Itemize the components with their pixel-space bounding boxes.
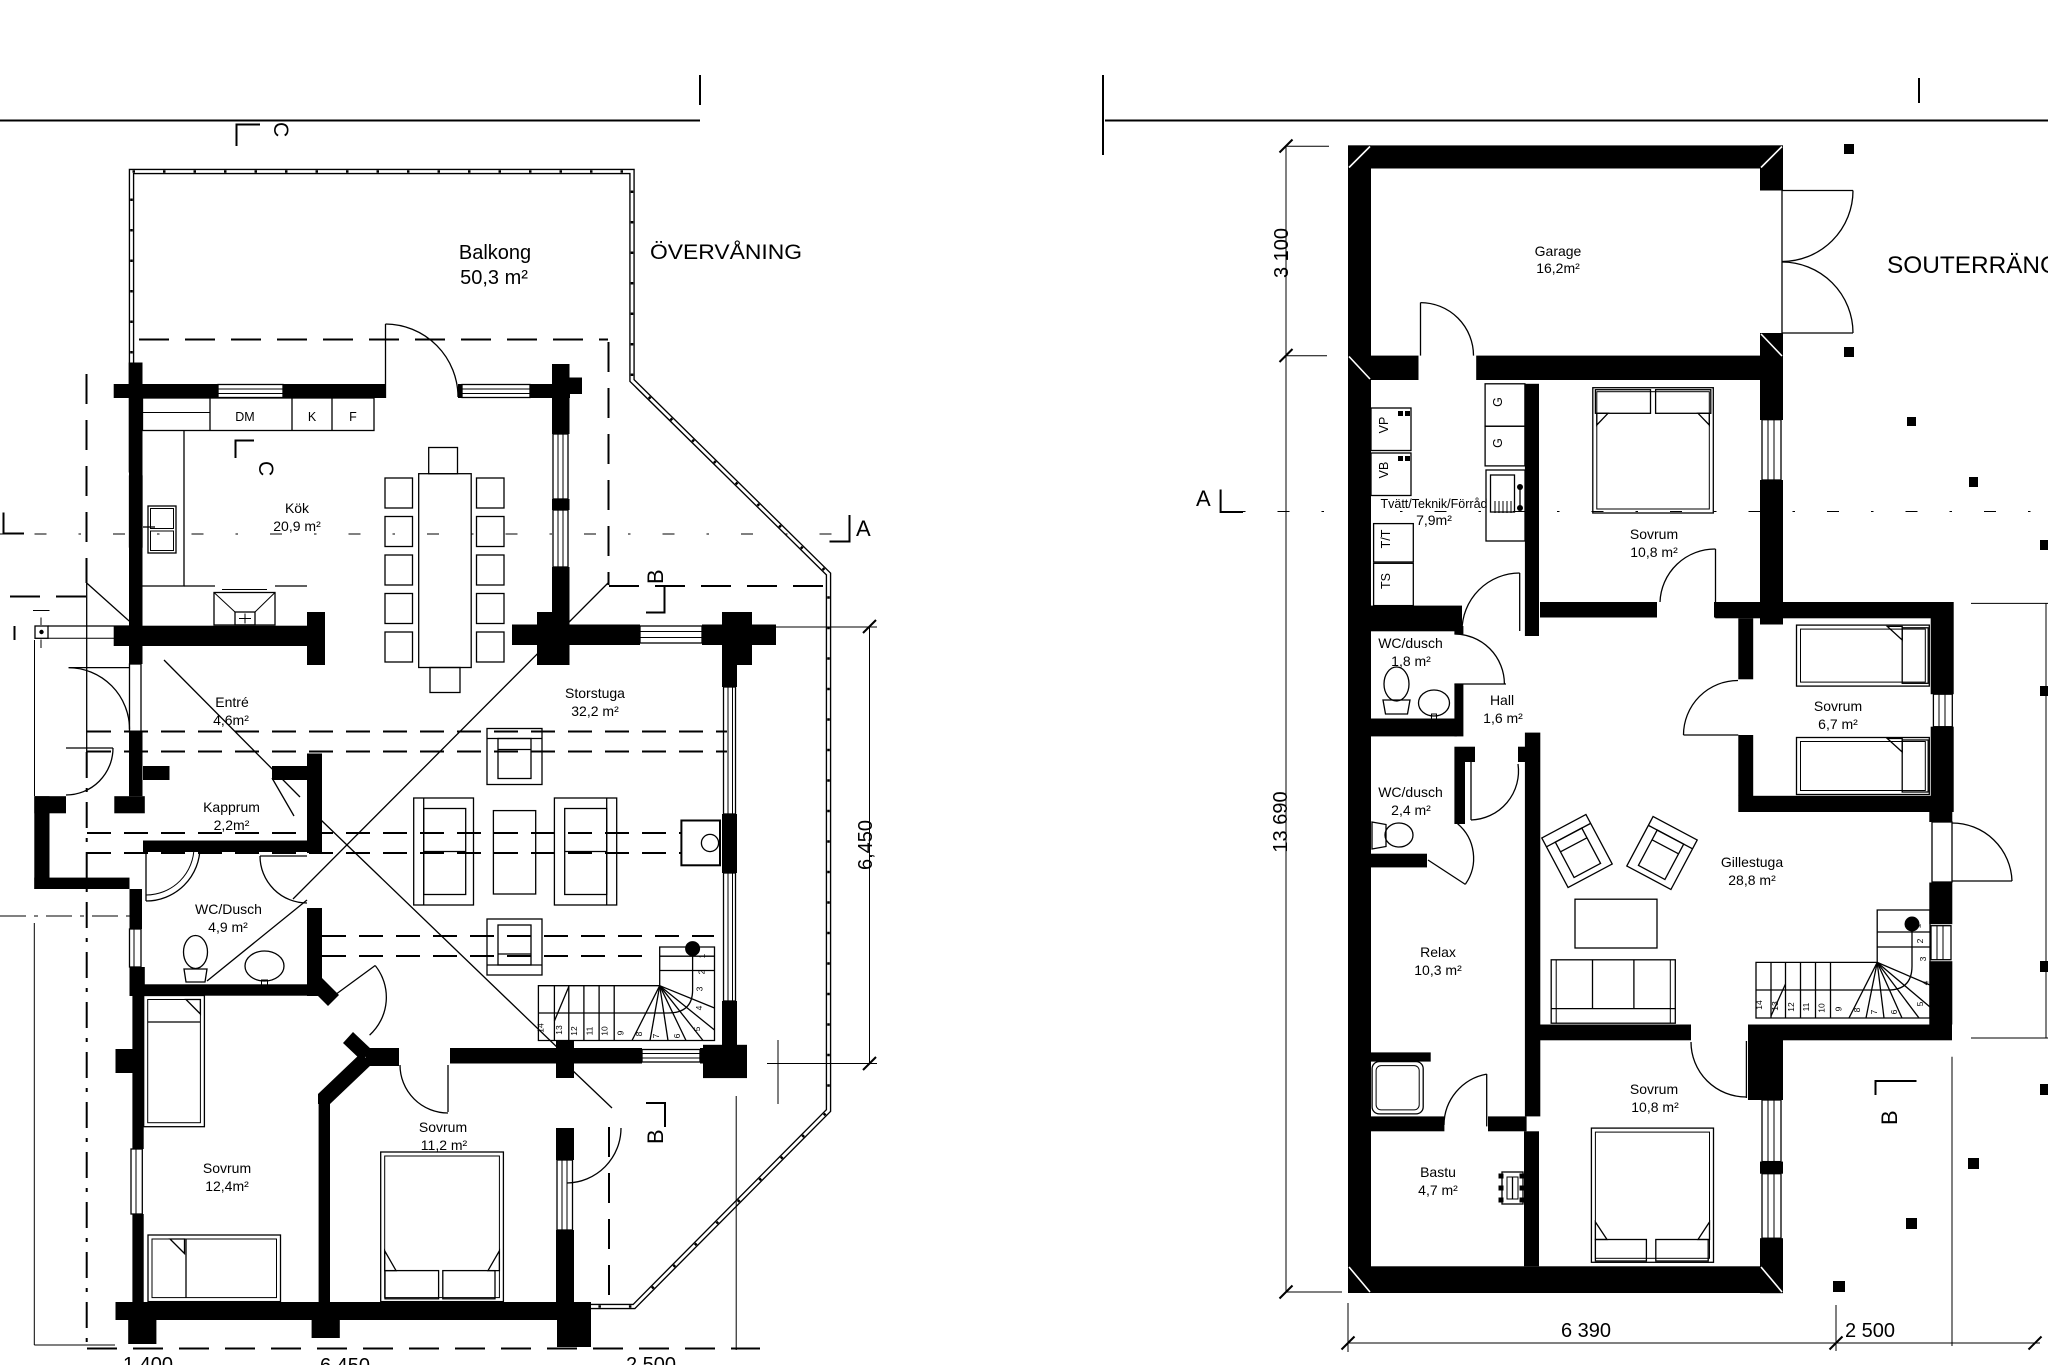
svg-text:11: 11 (584, 1026, 594, 1035)
svg-text:WC/dusch: WC/dusch (1378, 635, 1443, 651)
svg-text:8: 8 (634, 1031, 644, 1036)
svg-text:11: 11 (1801, 1002, 1811, 1011)
svg-text:10: 10 (1816, 1003, 1826, 1013)
svg-text:7: 7 (1869, 1009, 1879, 1014)
svg-text:Gillestuga: Gillestuga (1721, 854, 1783, 870)
svg-text:G: G (1491, 438, 1505, 448)
svg-text:Sovrum: Sovrum (419, 1119, 467, 1135)
svg-text:B: B (643, 569, 668, 584)
svg-text:5: 5 (1915, 1001, 1925, 1006)
svg-text:6 450: 6 450 (320, 1355, 370, 1365)
svg-text:6: 6 (1889, 1009, 1899, 1014)
svg-text:B: B (643, 1129, 668, 1144)
svg-text:Storstuga: Storstuga (565, 685, 625, 701)
svg-text:VP: VP (1377, 417, 1391, 434)
svg-text:9: 9 (1833, 1006, 1843, 1011)
svg-text:A: A (856, 516, 871, 541)
svg-text:WC/dusch: WC/dusch (1378, 784, 1443, 800)
svg-text:7,9m²: 7,9m² (1416, 512, 1452, 528)
svg-text:13 690: 13 690 (1270, 791, 1292, 852)
svg-text:2,4 m²: 2,4 m² (1391, 802, 1431, 818)
svg-text:2: 2 (696, 969, 706, 974)
svg-text:Bastu: Bastu (1420, 1164, 1456, 1180)
svg-text:Hall: Hall (1490, 692, 1514, 708)
svg-text:10,8 m²: 10,8 m² (1631, 1099, 1679, 1115)
svg-text:Garage: Garage (1535, 243, 1582, 259)
svg-text:Tvätt/Teknik/Förråd: Tvätt/Teknik/Förråd (1381, 497, 1488, 511)
svg-text:DM: DM (235, 410, 254, 424)
svg-text:Kök: Kök (285, 500, 310, 516)
svg-text:Balkong: Balkong (459, 242, 531, 264)
svg-text:28,8 m²: 28,8 m² (1728, 872, 1776, 888)
svg-text:4,7 m²: 4,7 m² (1418, 1182, 1458, 1198)
svg-text:10,3 m²: 10,3 m² (1414, 962, 1462, 978)
svg-text:9: 9 (616, 1030, 626, 1035)
svg-text:16,2m²: 16,2m² (1536, 260, 1580, 276)
svg-text:12: 12 (1786, 1002, 1796, 1012)
svg-text:2,2m²: 2,2m² (214, 817, 250, 833)
svg-text:VB: VB (1377, 462, 1391, 479)
svg-text:4: 4 (694, 1005, 704, 1010)
svg-text:32,2 m²: 32,2 m² (571, 703, 619, 719)
svg-text:8: 8 (1852, 1007, 1862, 1012)
svg-text:T/T: T/T (1379, 529, 1393, 548)
svg-text:Entré: Entré (215, 694, 249, 710)
svg-text:C: C (254, 461, 277, 476)
svg-text:3: 3 (695, 986, 705, 991)
svg-text:TS: TS (1379, 573, 1393, 589)
svg-text:20,9 m²: 20,9 m² (273, 518, 321, 534)
svg-text:WC/Dusch: WC/Dusch (195, 901, 262, 917)
svg-text:Sovrum: Sovrum (1630, 1081, 1678, 1097)
svg-text:Relax: Relax (1420, 944, 1456, 960)
svg-text:4,9 m²: 4,9 m² (208, 919, 248, 935)
svg-text:B: B (1877, 1110, 1902, 1125)
svg-text:5: 5 (692, 1026, 702, 1031)
svg-text:12: 12 (569, 1026, 579, 1036)
svg-text:3: 3 (1918, 956, 1928, 961)
svg-text:2 500: 2 500 (1845, 1320, 1895, 1342)
svg-text:F: F (349, 410, 357, 424)
svg-text:Sovrum: Sovrum (203, 1160, 251, 1176)
svg-text:G: G (1491, 397, 1505, 407)
svg-text:1 400: 1 400 (123, 1354, 173, 1365)
svg-text:Kapprum: Kapprum (203, 799, 260, 815)
svg-text:2 500: 2 500 (626, 1354, 676, 1365)
svg-text:2: 2 (1915, 938, 1925, 943)
svg-text:6,450: 6,450 (855, 820, 877, 870)
svg-text:3 100: 3 100 (1271, 228, 1293, 278)
svg-text:14: 14 (536, 1023, 546, 1033)
svg-text:6,7 m²: 6,7 m² (1818, 716, 1858, 732)
svg-text:1,6 m²: 1,6 m² (1483, 710, 1523, 726)
svg-text:12,4m²: 12,4m² (205, 1178, 249, 1194)
svg-text:1: 1 (1913, 923, 1923, 928)
svg-text:A: A (1196, 486, 1211, 511)
svg-text:Sovrum: Sovrum (1814, 698, 1862, 714)
svg-text:13: 13 (1770, 1001, 1780, 1011)
svg-text:14: 14 (1754, 1000, 1764, 1010)
svg-text:10,8 m²: 10,8 m² (1630, 544, 1678, 560)
svg-text:1: 1 (697, 953, 707, 958)
svg-text:SOUTERRÄNG: SOUTERRÄNG (1887, 252, 2048, 279)
svg-text:ÖVERVÅNING: ÖVERVÅNING (650, 240, 802, 264)
svg-text:Sovrum: Sovrum (1630, 526, 1678, 542)
svg-text:K: K (308, 410, 317, 424)
svg-text:11,2 m²: 11,2 m² (421, 1137, 468, 1153)
svg-text:50,3 m²: 50,3 m² (460, 267, 528, 289)
svg-text:C: C (269, 122, 292, 137)
svg-text:10: 10 (600, 1026, 610, 1036)
svg-text:13: 13 (554, 1025, 564, 1035)
svg-text:6 390: 6 390 (1561, 1320, 1611, 1342)
svg-text:4: 4 (1921, 980, 1931, 985)
svg-text:6: 6 (672, 1033, 682, 1038)
svg-text:7: 7 (651, 1033, 661, 1038)
